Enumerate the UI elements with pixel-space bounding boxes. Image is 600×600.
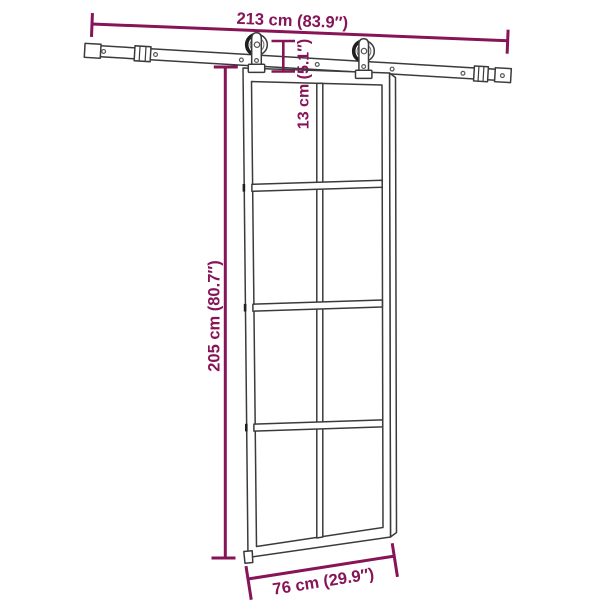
hanger-bolt-left (255, 59, 259, 63)
mullion-end-nub-2 (244, 304, 247, 312)
mullion-end-nub-3 (245, 424, 248, 432)
sliding-door-dimension-diagram: 213 cm (83.9″) 13 cm (5.1″) 205 cm (80.7… (0, 0, 600, 600)
left-roller-hanger (247, 33, 268, 73)
rail-width-label: 213 cm (83.9″) (236, 10, 348, 32)
door-vertical-mullion (317, 83, 323, 538)
roller-axle-right (361, 48, 366, 53)
rail-connector-right (474, 66, 489, 82)
diagram-canvas: 213 cm (83.9″) 13 cm (5.1″) 205 cm (80.7… (0, 0, 600, 600)
hanger-base-plate-left (248, 64, 264, 72)
rail-connector-left (134, 46, 151, 62)
hanger-height-label: 13 cm (5.1″) (296, 39, 313, 129)
hanger-base-plate-right (356, 70, 372, 78)
roller-axle-left (254, 42, 259, 47)
door-panel (243, 68, 397, 563)
dimension-door-height: 205 cm (80.7″) (206, 67, 238, 558)
rail-end-cap-left (84, 43, 101, 58)
right-roller-hanger (354, 39, 375, 79)
mullion-end-nub-1 (243, 184, 246, 192)
door-height-label: 205 cm (80.7″) (206, 260, 224, 372)
door-width-label: 76 cm (29.9″) (271, 565, 375, 599)
door-bottom-foot (244, 551, 253, 564)
hanger-bolt-right (362, 65, 366, 69)
